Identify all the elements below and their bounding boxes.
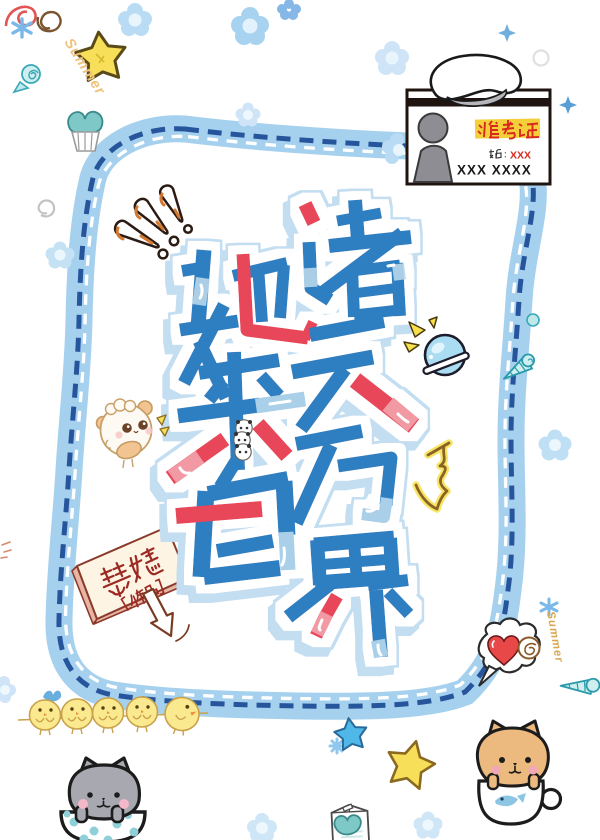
svg-text:XXX XXXX: XXX XXXX [457, 163, 532, 178]
svg-text:XXX: XXX [510, 150, 531, 162]
